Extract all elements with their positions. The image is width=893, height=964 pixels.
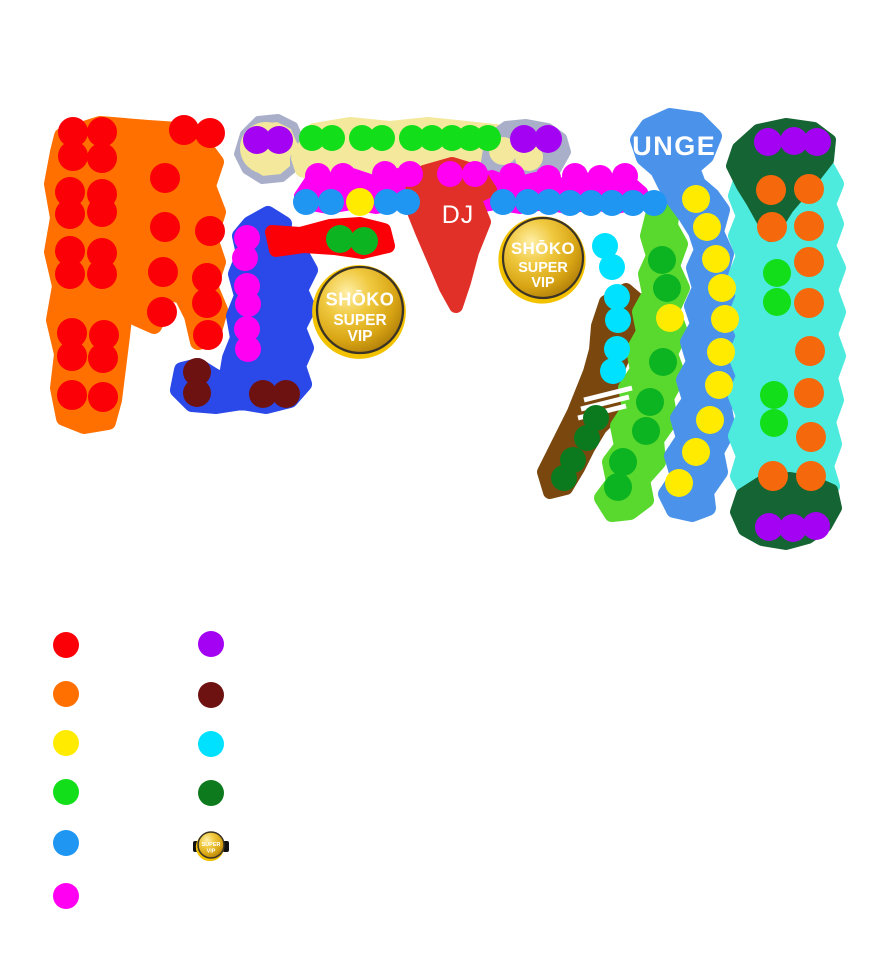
lounge-label: LOUNGE <box>592 131 717 161</box>
legend-swatch-purple <box>198 631 224 657</box>
table-dot-red-tables[interactable] <box>55 199 85 229</box>
table-dot-magenta-tables[interactable] <box>437 161 463 187</box>
table-dot-magenta-tables[interactable] <box>562 163 588 189</box>
legend-swatch-orange <box>53 681 79 707</box>
table-dot-magenta-tables[interactable] <box>235 336 261 362</box>
table-dot-red-tables[interactable] <box>148 257 178 287</box>
table-dot-yellow-tables[interactable] <box>707 338 735 366</box>
super-vip-badge[interactable]: SHŌKOSUPERVIP <box>498 216 585 303</box>
table-dot-maroon-tables[interactable] <box>272 380 300 408</box>
legend-swatch-red <box>53 632 79 658</box>
table-dot-purple-tables[interactable] <box>510 125 538 153</box>
table-dot-cyan-tables[interactable] <box>604 336 630 362</box>
dj-booth-label: DJ <box>442 201 475 229</box>
table-dot-orange-tables[interactable] <box>756 175 786 205</box>
table-dot-mid-green-tables[interactable] <box>636 388 664 416</box>
table-dot-blue-row-tables[interactable] <box>318 189 344 215</box>
super-vip-badge[interactable]: SHŌKOSUPERVIP <box>312 265 406 359</box>
badge-brand-text: SHŌKO <box>326 290 395 310</box>
table-dot-blue-row-tables[interactable] <box>394 189 420 215</box>
table-dot-blue-row-tables[interactable] <box>293 189 319 215</box>
table-dot-yellow-tables[interactable] <box>682 185 710 213</box>
table-dot-red-tables[interactable] <box>193 320 223 350</box>
table-dot-red-tables[interactable] <box>87 259 117 289</box>
table-dot-red-tables[interactable] <box>87 143 117 173</box>
table-dot-cyan-tables[interactable] <box>599 254 625 280</box>
table-dot-purple-tables[interactable] <box>754 128 782 156</box>
legend-swatch-dark-red <box>198 682 224 708</box>
table-dot-red-tables[interactable] <box>57 380 87 410</box>
table-dot-red-tables[interactable] <box>195 216 225 246</box>
table-dot-red-tables[interactable] <box>150 163 180 193</box>
table-dot-yellow-tables[interactable] <box>708 274 736 302</box>
table-dot-magenta-tables[interactable] <box>305 163 331 189</box>
table-dot-red-tables[interactable] <box>58 141 88 171</box>
table-dot-magenta-tables[interactable] <box>612 163 638 189</box>
table-dot-mid-green-tables[interactable] <box>632 417 660 445</box>
table-dot-purple-tables[interactable] <box>803 128 831 156</box>
table-dot-orange-tables[interactable] <box>794 247 824 277</box>
legend-swatch-cyan <box>198 731 224 757</box>
table-dot-yellow-tables[interactable] <box>711 305 739 333</box>
table-dot-magenta-tables[interactable] <box>330 163 356 189</box>
table-dot-maroon-tables[interactable] <box>183 379 211 407</box>
badge-vip-text: VIP <box>531 275 555 291</box>
table-dot-magenta-tables[interactable] <box>587 165 613 191</box>
table-dot-cyan-tables[interactable] <box>605 307 631 333</box>
table-dot-red-tables[interactable] <box>88 343 118 373</box>
table-dot-red-tables[interactable] <box>87 117 117 147</box>
table-dot-orange-tables[interactable] <box>796 422 826 452</box>
table-dot-red-tables[interactable] <box>88 382 118 412</box>
badge-brand-text: SHŌKO <box>511 239 575 258</box>
table-dot-cyan-tables[interactable] <box>604 284 630 310</box>
super-vip-badge: SUPERVIP <box>193 832 229 861</box>
table-dot-green-row-tables[interactable] <box>475 125 501 151</box>
table-dot-mid-green-tables[interactable] <box>350 227 378 255</box>
table-dot-blue-row-tables[interactable] <box>490 189 516 215</box>
table-dot-purple-tables[interactable] <box>534 125 562 153</box>
table-dot-magenta-tables[interactable] <box>397 161 423 187</box>
table-dot-dark-green-tables[interactable] <box>574 425 600 451</box>
table-dot-orange-tables[interactable] <box>795 336 825 366</box>
table-dot-green-pair-tables[interactable] <box>760 409 788 437</box>
badge-vip-text: VIP <box>348 328 373 345</box>
legend-swatch-green <box>53 779 79 805</box>
table-dot-orange-tables[interactable] <box>794 378 824 408</box>
table-dot-green-pair-tables[interactable] <box>763 288 791 316</box>
table-dot-red-tables[interactable] <box>147 297 177 327</box>
legend-swatch-dark-green <box>198 780 224 806</box>
table-dot-red-tables[interactable] <box>195 118 225 148</box>
table-dot-red-tables[interactable] <box>169 115 199 145</box>
table-dot-magenta-tables[interactable] <box>235 291 261 317</box>
table-dot-purple-tables[interactable] <box>755 513 783 541</box>
table-dot-yellow-tables[interactable] <box>693 213 721 241</box>
table-dot-orange-tables[interactable] <box>794 288 824 318</box>
table-dot-red-tables[interactable] <box>150 212 180 242</box>
table-dot-mid-green-tables[interactable] <box>604 473 632 501</box>
badge-super-text: SUPER <box>333 312 386 329</box>
table-dot-blue-row-tables[interactable] <box>641 190 667 216</box>
table-dot-mid-green-tables[interactable] <box>609 448 637 476</box>
table-dot-mid-green-tables[interactable] <box>653 274 681 302</box>
badge-super-text: SUPER <box>202 842 221 848</box>
table-dot-mid-green-tables[interactable] <box>326 225 354 253</box>
table-dot-orange-tables[interactable] <box>758 461 788 491</box>
table-dot-magenta-tables[interactable] <box>535 165 561 191</box>
table-dot-green-pair-tables[interactable] <box>763 259 791 287</box>
table-dot-orange-tables[interactable] <box>757 212 787 242</box>
venue-floor-map: LOUNGE DJ SHŌKOSUPERVIPSHŌKOSUPERVIPSUPE… <box>0 0 893 964</box>
table-dot-red-tables[interactable] <box>57 341 87 371</box>
table-dot-yellow-tables[interactable] <box>705 371 733 399</box>
table-dot-purple-tables[interactable] <box>802 512 830 540</box>
table-dot-red-tables[interactable] <box>87 197 117 227</box>
legend-swatch-magenta <box>53 883 79 909</box>
table-dot-mid-green-tables[interactable] <box>648 246 676 274</box>
table-dot-red-tables[interactable] <box>55 259 85 289</box>
table-dot-mid-green-tables[interactable] <box>649 348 677 376</box>
badge-vip-text: VIP <box>207 849 216 855</box>
table-dot-green-row-tables[interactable] <box>319 125 345 151</box>
table-dot-yellow-tables[interactable] <box>346 188 374 216</box>
table-dot-red-tables[interactable] <box>192 288 222 318</box>
table-dot-green-pair-tables[interactable] <box>760 381 788 409</box>
legend-swatch-blue <box>53 830 79 856</box>
table-dot-magenta-tables[interactable] <box>462 161 488 187</box>
legend <box>53 631 224 909</box>
table-dot-magenta-tables[interactable] <box>372 161 398 187</box>
table-dot-yellow-tables[interactable] <box>702 245 730 273</box>
table-dot-cyan-tables[interactable] <box>600 358 626 384</box>
table-dot-green-row-tables[interactable] <box>369 125 395 151</box>
table-dot-orange-tables[interactable] <box>794 174 824 204</box>
table-dot-magenta-tables[interactable] <box>499 163 525 189</box>
table-dot-purple-tables[interactable] <box>265 126 293 154</box>
table-dot-yellow-tables[interactable] <box>665 469 693 497</box>
badge-super-text: SUPER <box>518 260 568 276</box>
table-dot-yellow-tables[interactable] <box>656 304 684 332</box>
page: LOUNGE DJ SHŌKOSUPERVIPSHŌKOSUPERVIPSUPE… <box>0 0 893 964</box>
table-dot-orange-tables[interactable] <box>796 461 826 491</box>
table-dot-orange-tables[interactable] <box>794 211 824 241</box>
table-dot-yellow-tables[interactable] <box>696 406 724 434</box>
table-dot-magenta-tables[interactable] <box>232 245 258 271</box>
table-dot-dark-green-tables[interactable] <box>551 465 577 491</box>
legend-swatch-yellow <box>53 730 79 756</box>
table-dot-yellow-tables[interactable] <box>682 438 710 466</box>
